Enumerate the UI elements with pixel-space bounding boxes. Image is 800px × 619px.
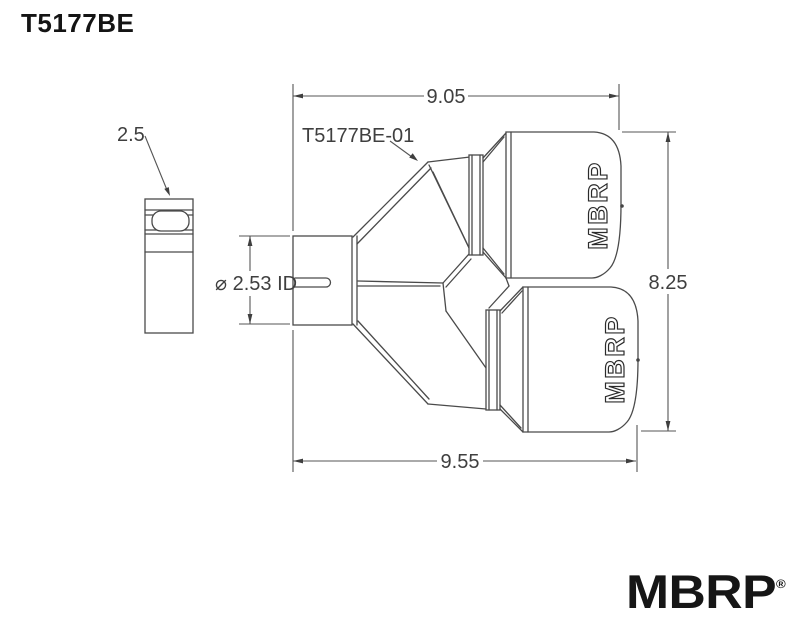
- arrow-left-icon: [293, 94, 303, 99]
- part-number-callout: T5177BE-01: [302, 125, 418, 161]
- leader-arrow-icon: [409, 153, 418, 161]
- dim-top-label: 9.05: [427, 86, 466, 108]
- arrow-right-icon: [609, 94, 619, 99]
- clamp-width-callout: 2.5: [117, 124, 170, 196]
- dim-bottom-label: 9.55: [441, 451, 480, 473]
- clamp-width-label: 2.5: [117, 124, 145, 146]
- part-number-label: T5177BE-01: [302, 125, 414, 147]
- inlet-diameter-label: ⌀ 2.53 ID: [215, 273, 297, 295]
- upper-band: [469, 155, 483, 255]
- arrow-up-icon: [248, 236, 253, 246]
- clamp-screw-housing: [152, 211, 189, 231]
- lower-tangent-dot: [636, 358, 640, 362]
- arrow-up-icon: [666, 132, 671, 142]
- dim-right-label: 8.25: [649, 272, 688, 294]
- dimension-inlet: ⌀ 2.53 ID: [215, 236, 297, 324]
- mbrp-logo: MBRP®: [626, 564, 786, 619]
- arrow-left-icon: [293, 459, 303, 464]
- mbrp-logo-text: MBRP: [626, 565, 776, 618]
- lower-tip-brand-text: MBRP: [600, 314, 630, 404]
- upper-tip-brand-text: MBRP: [583, 160, 613, 250]
- y-pipe-view: MBRP MBRP: [293, 132, 640, 432]
- clamp-view: [145, 199, 193, 333]
- arrow-down-icon: [248, 314, 253, 324]
- arrow-right-icon: [626, 459, 636, 464]
- technical-drawing: MBRP MBRP 9.05 9.55: [0, 0, 800, 618]
- upper-tangent-dot: [620, 204, 624, 208]
- leader-arrow-icon: [164, 187, 170, 196]
- inlet-pipe: [293, 236, 352, 325]
- lower-band: [486, 310, 500, 410]
- registered-mark: ®: [776, 577, 786, 591]
- arrow-down-icon: [666, 421, 671, 431]
